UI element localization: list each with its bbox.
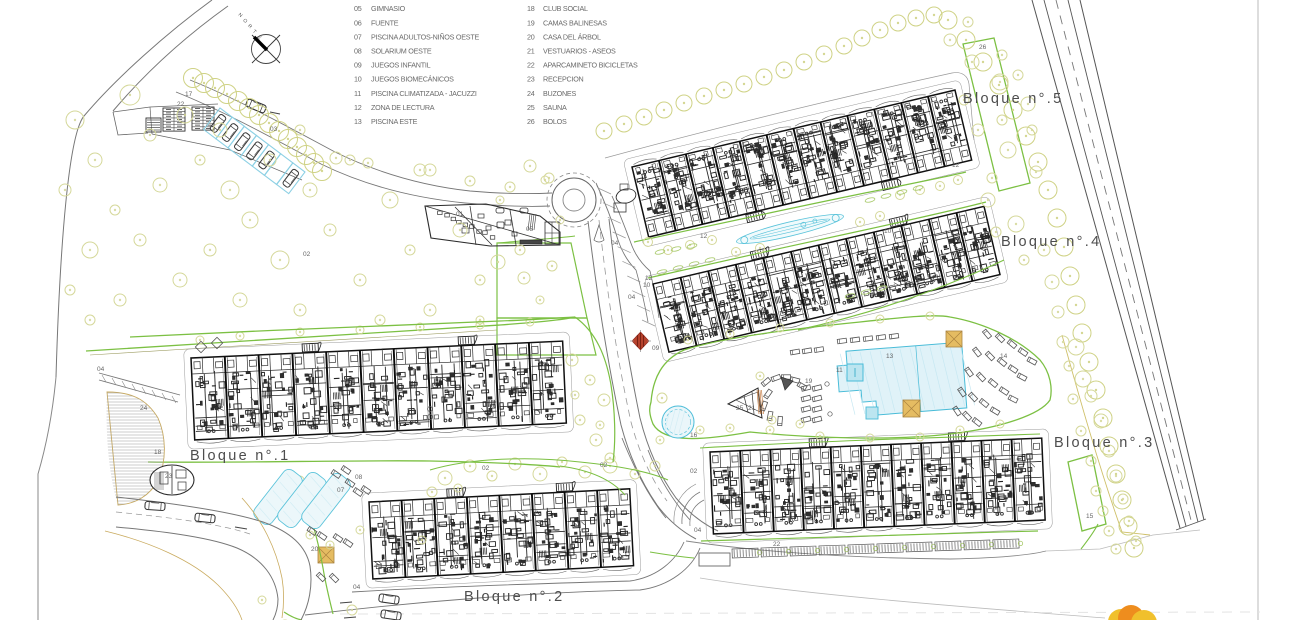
svg-text:20: 20 [311,546,319,553]
svg-text:Bloque n°.1: Bloque n°.1 [190,448,290,464]
svg-text:06: 06 [354,18,362,27]
svg-text:ZONA DE LECTURA: ZONA DE LECTURA [371,103,435,112]
svg-text:22: 22 [527,61,535,70]
svg-text:19: 19 [527,18,535,27]
svg-text:04: 04 [353,584,361,591]
svg-text:25: 25 [527,103,535,112]
svg-text:PISCINA CLIMATIZADA - JACUZZI: PISCINA CLIMATIZADA - JACUZZI [371,89,477,98]
svg-text:04: 04 [628,294,636,301]
svg-text:SOLARIUM OESTE: SOLARIUM OESTE [371,47,432,56]
svg-text:23: 23 [527,75,535,84]
svg-text:SAUNA: SAUNA [543,103,567,112]
svg-text:23: 23 [165,473,173,480]
svg-text:12: 12 [952,162,960,169]
svg-text:PISCINA ADULTOS-NIÑOS OESTE: PISCINA ADULTOS-NIÑOS OESTE [371,32,479,41]
svg-text:Bloque n°.3: Bloque n°.3 [1054,435,1154,451]
svg-text:05: 05 [354,4,362,13]
svg-text:19: 19 [805,378,813,385]
svg-text:24: 24 [140,405,148,412]
svg-text:GIMNASIO: GIMNASIO [371,4,406,13]
svg-text:15: 15 [1086,513,1094,520]
svg-text:Bloque n°.5: Bloque n°.5 [963,91,1063,107]
svg-text:11: 11 [836,367,843,374]
svg-text:04: 04 [97,366,105,373]
svg-text:07: 07 [354,32,362,41]
svg-text:10: 10 [354,75,362,84]
svg-text:12: 12 [645,275,653,282]
svg-text:Bloque n°.4: Bloque n°.4 [1001,234,1101,250]
svg-text:08: 08 [355,474,363,481]
svg-text:12: 12 [700,233,708,240]
svg-text:07: 07 [337,487,345,494]
svg-text:CASA DEL ÁRBOL: CASA DEL ÁRBOL [543,32,601,41]
svg-text:18: 18 [154,449,162,456]
svg-text:APARCAMINETO BICICLETAS: APARCAMINETO BICICLETAS [543,61,638,70]
svg-text:16: 16 [690,432,698,439]
svg-text:04: 04 [611,240,619,247]
svg-text:09: 09 [652,345,660,352]
svg-text:10: 10 [643,282,651,289]
svg-text:CAMAS BALINESAS: CAMAS BALINESAS [543,18,607,27]
svg-text:RECEPCION: RECEPCION [543,75,584,84]
svg-text:25: 25 [736,405,744,412]
svg-text:02: 02 [600,462,608,469]
svg-text:26: 26 [527,117,535,126]
svg-text:05: 05 [526,226,534,233]
svg-text:FUENTE: FUENTE [371,18,399,27]
svg-text:JUEGOS BIOMECÁNICOS: JUEGOS BIOMECÁNICOS [371,75,454,84]
svg-text:20: 20 [527,32,535,41]
svg-text:PISCINA ESTE: PISCINA ESTE [371,117,418,126]
svg-text:18: 18 [527,4,535,13]
svg-text:22: 22 [177,101,185,108]
svg-text:24: 24 [527,89,535,98]
svg-text:Bloque n°.2: Bloque n°.2 [464,589,564,605]
svg-text:11: 11 [354,89,361,98]
svg-text:12: 12 [354,103,362,112]
svg-text:26: 26 [979,44,987,51]
svg-text:CLUB SOCIAL: CLUB SOCIAL [543,4,588,13]
svg-text:21: 21 [527,47,535,56]
svg-text:22: 22 [773,541,781,548]
svg-text:13: 13 [886,353,894,360]
svg-text:02: 02 [690,468,698,475]
svg-text:01: 01 [456,211,464,218]
svg-text:08: 08 [354,47,362,56]
svg-text:02: 02 [303,251,311,258]
svg-text:10: 10 [884,228,892,235]
svg-text:04: 04 [694,527,702,534]
svg-text:13: 13 [354,117,362,126]
svg-text:BOLOS: BOLOS [543,117,567,126]
svg-text:09: 09 [354,61,362,70]
svg-text:JUEGOS INFANTIL: JUEGOS INFANTIL [371,61,431,70]
svg-text:03: 03 [270,126,278,133]
svg-text:02: 02 [482,465,490,472]
svg-text:BUZONES: BUZONES [543,89,576,98]
svg-text:17: 17 [185,91,193,98]
svg-text:14: 14 [1000,353,1008,360]
svg-text:21: 21 [748,405,756,412]
svg-text:VESTUARIOS - ASEOS: VESTUARIOS - ASEOS [543,47,616,56]
